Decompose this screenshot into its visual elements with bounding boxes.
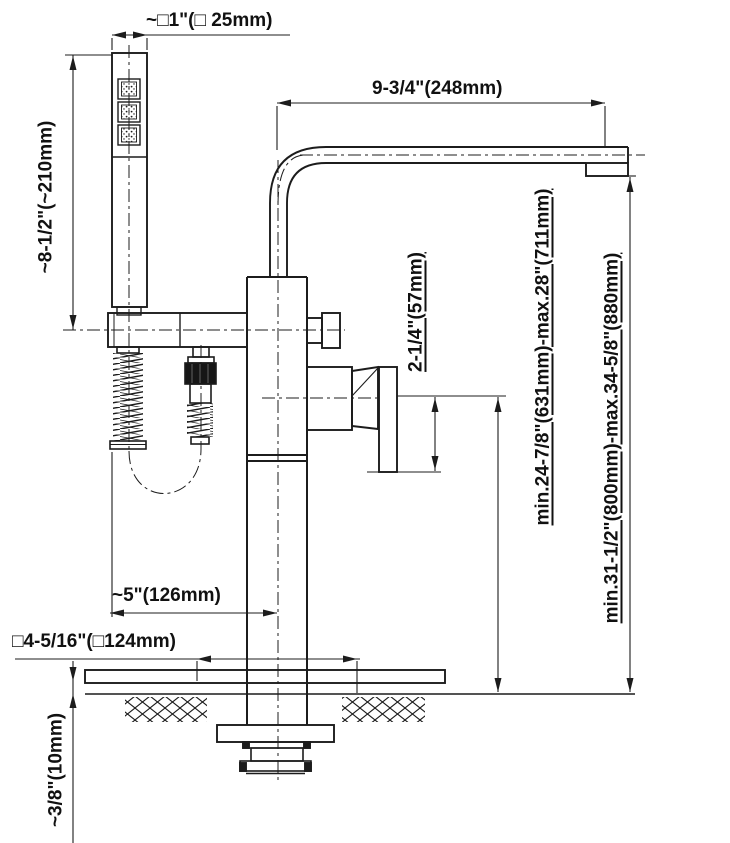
dim-label-spout-height-range: min.24-7/8"(631mm)-max.28"(711mm) bbox=[534, 189, 553, 526]
handle-assembly bbox=[307, 367, 397, 472]
spray-nozzle-dots bbox=[122, 82, 137, 142]
dim-label-hand-shower-length: ~8-1/2"(~210mm) bbox=[37, 121, 56, 274]
spout-outlet bbox=[586, 163, 628, 176]
technical-drawing-canvas: ~□1"(□ 25mm) 9-3/4"(248mm) ~8-1/2"(~210m… bbox=[0, 0, 730, 843]
cover-plate bbox=[85, 670, 445, 683]
floor-hatch-left bbox=[125, 697, 207, 722]
knurled-nut bbox=[185, 363, 216, 384]
floor-hatch-right bbox=[342, 697, 425, 722]
centerlines bbox=[63, 45, 645, 783]
dim-label-hand-shower-width: ~□1"(□ 25mm) bbox=[146, 11, 272, 30]
dim-label-base-cutout-width: □4-5/16"(□124mm) bbox=[12, 632, 176, 651]
dim-label-total-height-range: min.31-1/2"(800mm)-max.34-5/8"(880mm) bbox=[603, 253, 622, 624]
dim-label-handle-drop: 2-1/4"(57mm) bbox=[407, 252, 426, 372]
lever-handle bbox=[379, 367, 397, 472]
dim-label-column-offset: ~5"(126mm) bbox=[112, 586, 221, 605]
mounting-flange bbox=[217, 725, 334, 742]
main-column bbox=[247, 277, 307, 725]
dim-label-spout-reach: 9-3/4"(248mm) bbox=[372, 79, 502, 98]
dim-label-floor-covering-thickness: ~3/8"(10mm) bbox=[47, 713, 66, 827]
shower-hose bbox=[110, 347, 146, 449]
floor-and-base bbox=[85, 670, 635, 774]
spout bbox=[270, 147, 628, 277]
tailpiece-nut bbox=[240, 761, 311, 771]
